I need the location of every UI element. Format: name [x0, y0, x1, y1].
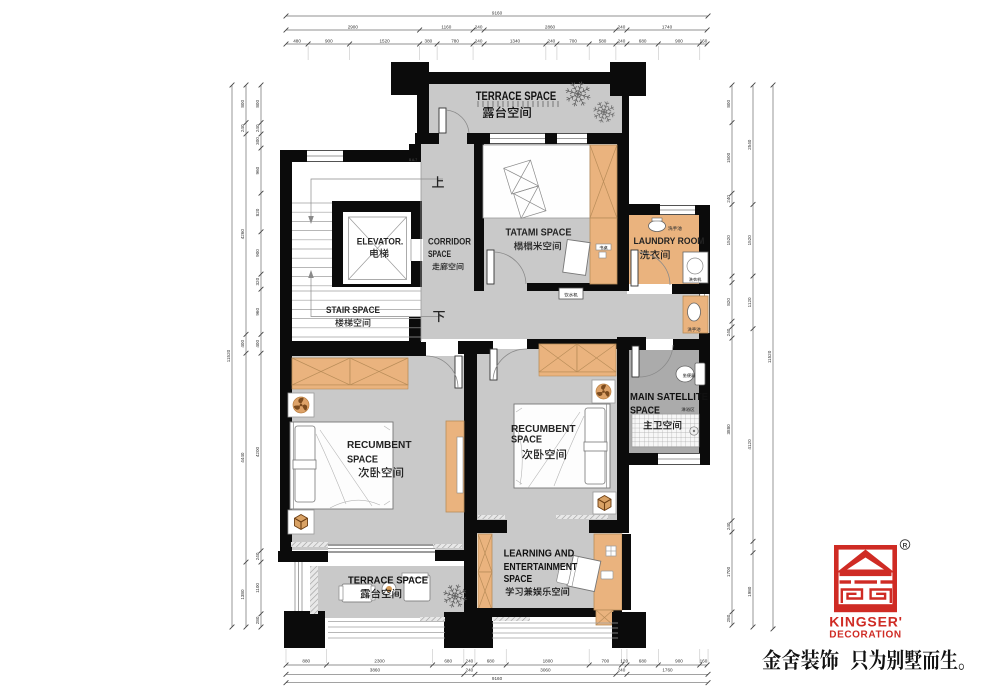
svg-text:ELEVATOR.: ELEVATOR.	[357, 237, 404, 248]
svg-text:820: 820	[255, 208, 260, 216]
svg-text:580: 580	[599, 38, 607, 43]
svg-text:960: 960	[255, 166, 260, 174]
svg-text:1160: 1160	[441, 24, 451, 29]
svg-text:700: 700	[569, 38, 577, 43]
svg-text:1340: 1340	[510, 38, 521, 43]
svg-text:400: 400	[240, 340, 245, 348]
svg-text:240: 240	[726, 522, 731, 530]
svg-text:1380: 1380	[240, 589, 245, 600]
svg-text:SPACE: SPACE	[630, 405, 660, 417]
svg-text:11520: 11520	[767, 350, 772, 363]
svg-text:700: 700	[601, 658, 609, 663]
svg-text:B.A-7: B.A-7	[409, 158, 417, 162]
svg-text:240: 240	[618, 24, 626, 29]
svg-text:1800: 1800	[543, 658, 554, 663]
svg-text:240: 240	[618, 668, 626, 673]
svg-text:MAIN SATELLITE: MAIN SATELLITE	[630, 391, 708, 403]
svg-text:240: 240	[255, 124, 260, 132]
svg-text:STAIR SPACE: STAIR SPACE	[326, 305, 380, 316]
svg-text:3860: 3860	[370, 668, 381, 673]
svg-text:9160: 9160	[492, 676, 503, 681]
svg-text:900: 900	[675, 38, 683, 43]
svg-text:1120: 1120	[747, 297, 752, 307]
svg-text:160: 160	[700, 658, 708, 663]
svg-text:3880: 3880	[726, 424, 731, 435]
svg-text:380: 380	[425, 38, 433, 43]
svg-text:240: 240	[618, 38, 626, 43]
svg-text:300: 300	[255, 137, 260, 145]
svg-text:CORRIDOR: CORRIDOR	[428, 237, 471, 248]
svg-text:240: 240	[240, 124, 245, 132]
svg-text:1500: 1500	[726, 152, 731, 163]
svg-text:320: 320	[255, 277, 260, 285]
svg-text:240: 240	[726, 195, 731, 203]
svg-text:1520: 1520	[747, 235, 752, 246]
svg-text:240: 240	[475, 38, 483, 43]
svg-text:680: 680	[639, 38, 647, 43]
svg-text:4120: 4120	[747, 439, 752, 450]
svg-text:960: 960	[255, 308, 260, 316]
svg-text:4260: 4260	[240, 229, 245, 240]
svg-text:LAUNDRY ROOM: LAUNDRY ROOM	[634, 236, 705, 247]
svg-text:240: 240	[475, 24, 483, 29]
svg-text:1740: 1740	[662, 24, 673, 29]
svg-text:1700: 1700	[726, 566, 731, 577]
svg-text:800: 800	[726, 100, 731, 108]
svg-text:800: 800	[255, 100, 260, 108]
svg-text:2900: 2900	[348, 24, 359, 29]
svg-text:680: 680	[444, 658, 452, 663]
svg-text:160: 160	[700, 38, 708, 43]
svg-text:900: 900	[675, 658, 683, 663]
svg-text:SPACE: SPACE	[347, 453, 378, 465]
svg-text:LEARNING AND: LEARNING AND	[504, 548, 575, 560]
svg-text:880: 880	[302, 658, 310, 663]
svg-text:900: 900	[325, 38, 333, 43]
svg-text:120: 120	[620, 658, 628, 663]
svg-text:11520: 11520	[226, 349, 231, 362]
svg-text:240: 240	[255, 552, 260, 560]
svg-text:240: 240	[466, 668, 474, 673]
svg-text:240: 240	[726, 328, 731, 336]
svg-text:780: 780	[451, 38, 459, 43]
svg-text:800: 800	[240, 100, 245, 108]
svg-text:TATAMI SPACE: TATAMI SPACE	[506, 227, 572, 239]
svg-text:2300: 2300	[374, 658, 385, 663]
svg-text:900: 900	[255, 249, 260, 257]
svg-text:280: 280	[255, 616, 260, 624]
svg-text:240: 240	[466, 658, 474, 663]
svg-text:SPACE: SPACE	[504, 573, 533, 585]
svg-text:1760: 1760	[662, 668, 673, 673]
svg-text:3060: 3060	[540, 668, 551, 673]
svg-text:1520: 1520	[379, 38, 390, 43]
svg-text:R: R	[903, 542, 908, 549]
svg-text:240: 240	[548, 38, 556, 43]
svg-text:680: 680	[639, 658, 647, 663]
svg-text:680: 680	[487, 658, 495, 663]
svg-text:480: 480	[293, 38, 301, 43]
svg-text:KINGSER': KINGSER'	[829, 613, 903, 629]
svg-text:1100: 1100	[255, 583, 260, 593]
svg-text:TERRACE SPACE: TERRACE SPACE	[348, 575, 428, 587]
svg-text:9160: 9160	[492, 10, 503, 15]
svg-text:4440: 4440	[240, 452, 245, 463]
svg-text:DECORATION: DECORATION	[829, 629, 901, 640]
svg-text:400: 400	[255, 340, 260, 348]
svg-text:820: 820	[726, 298, 731, 306]
svg-text:280: 280	[726, 614, 731, 622]
svg-text:2860: 2860	[545, 24, 556, 29]
svg-text:ENTERTAINMENT: ENTERTAINMENT	[504, 561, 578, 573]
svg-text:2540: 2540	[747, 139, 752, 150]
svg-text:1980: 1980	[747, 586, 752, 597]
svg-text:1520: 1520	[726, 235, 731, 246]
svg-text:SPACE: SPACE	[511, 434, 542, 446]
svg-text:SPACE: SPACE	[428, 249, 451, 260]
svg-text:4200: 4200	[255, 446, 260, 457]
svg-text:RECUMBENT: RECUMBENT	[347, 439, 412, 451]
